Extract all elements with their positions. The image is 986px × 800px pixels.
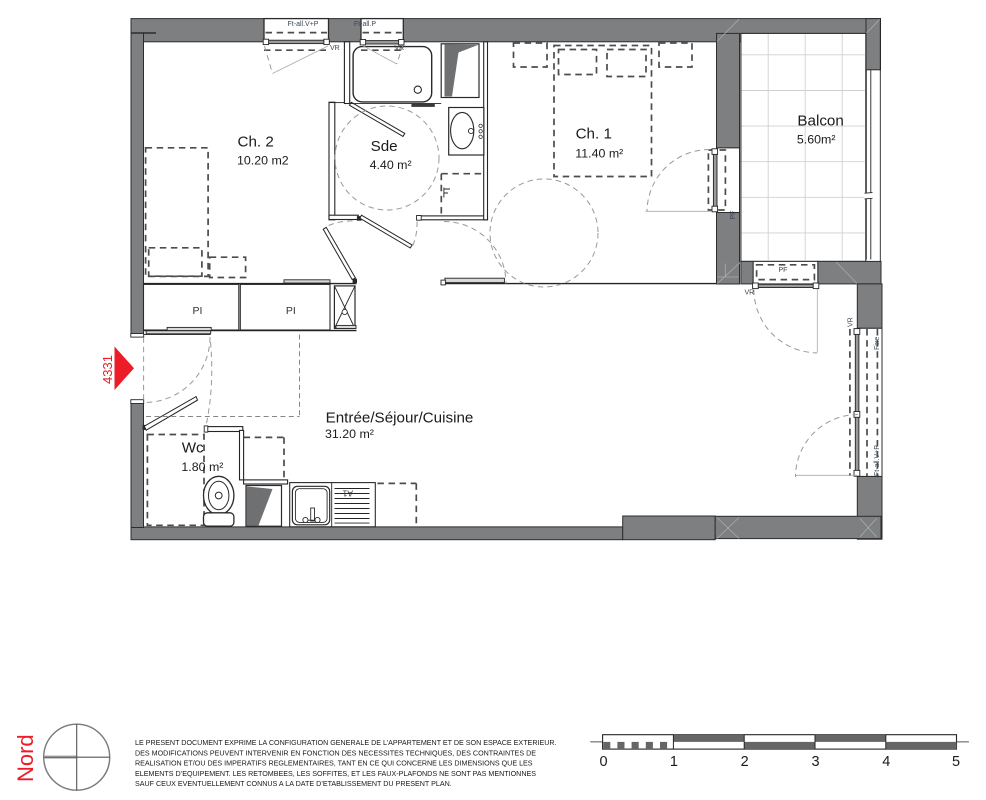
- svg-text:SAUF CEUX EVENTUELLEMENT CONNU: SAUF CEUX EVENTUELLEMENT CONNUS A LA DAT…: [135, 780, 452, 788]
- svg-text:Ft-all.P: Ft-all.P: [354, 21, 377, 28]
- svg-text:Nord: Nord: [13, 734, 38, 782]
- svg-text:5: 5: [952, 754, 960, 770]
- svg-text:PI: PI: [286, 305, 296, 317]
- svg-text:5.60m²: 5.60m²: [797, 133, 836, 147]
- svg-text:Wc: Wc: [182, 440, 204, 457]
- svg-text:PF: PF: [730, 211, 737, 220]
- svg-text:1.80 m²: 1.80 m²: [181, 460, 223, 474]
- svg-text:3: 3: [811, 754, 819, 770]
- svg-text:10.20 m2: 10.20 m2: [237, 153, 289, 167]
- svg-text:VR: VR: [330, 45, 340, 52]
- svg-text:2: 2: [741, 754, 749, 770]
- svg-text:VR: VR: [848, 317, 855, 327]
- svg-text:A1: A1: [342, 489, 353, 499]
- svg-text:31.20 m²: 31.20 m²: [325, 427, 374, 441]
- svg-text:1: 1: [670, 754, 678, 770]
- svg-text:Ch. 1: Ch. 1: [576, 126, 612, 143]
- svg-text:Ft-all.V+P: Ft-all.V+P: [288, 21, 319, 28]
- svg-text:REALISATION ET/OU DES IMPERATI: REALISATION ET/OU DES IMPERATIFS REGLEME…: [135, 760, 533, 768]
- svg-text:Ch. 2: Ch. 2: [238, 134, 274, 151]
- svg-text:4.40 m²: 4.40 m²: [370, 158, 412, 172]
- svg-text:LE PRESENT DOCUMENT EXPRIME LA: LE PRESENT DOCUMENT EXPRIME LA CONFIGURA…: [135, 739, 557, 747]
- svg-text:11.40 m²: 11.40 m²: [575, 146, 623, 160]
- svg-text:PF: PF: [779, 267, 788, 274]
- svg-text:4: 4: [882, 754, 890, 770]
- svg-text:Sde: Sde: [371, 138, 398, 155]
- svg-text:VR: VR: [395, 45, 405, 52]
- svg-text:0: 0: [599, 754, 607, 770]
- svg-text:DES MODIFICATIONS PEUVENT INTE: DES MODIFICATIONS PEUVENT INTERVENIR EN …: [135, 749, 536, 757]
- svg-text:ELEMENTS D’EQUIPEMENT. LES RET: ELEMENTS D’EQUIPEMENT. LES RETOMBEES, LE…: [135, 770, 536, 778]
- svg-text:Balcon: Balcon: [797, 113, 843, 130]
- svg-text:PI: PI: [193, 305, 203, 317]
- svg-text:VR: VR: [745, 290, 755, 297]
- svg-text:4331: 4331: [100, 355, 115, 384]
- svg-text:Entrée/Séjour/Cuisine: Entrée/Séjour/Cuisine: [326, 409, 474, 426]
- svg-text:Fixe: Fixe: [874, 337, 881, 350]
- svg-text:Ft-all.V+P: Ft-all.V+P: [874, 445, 881, 476]
